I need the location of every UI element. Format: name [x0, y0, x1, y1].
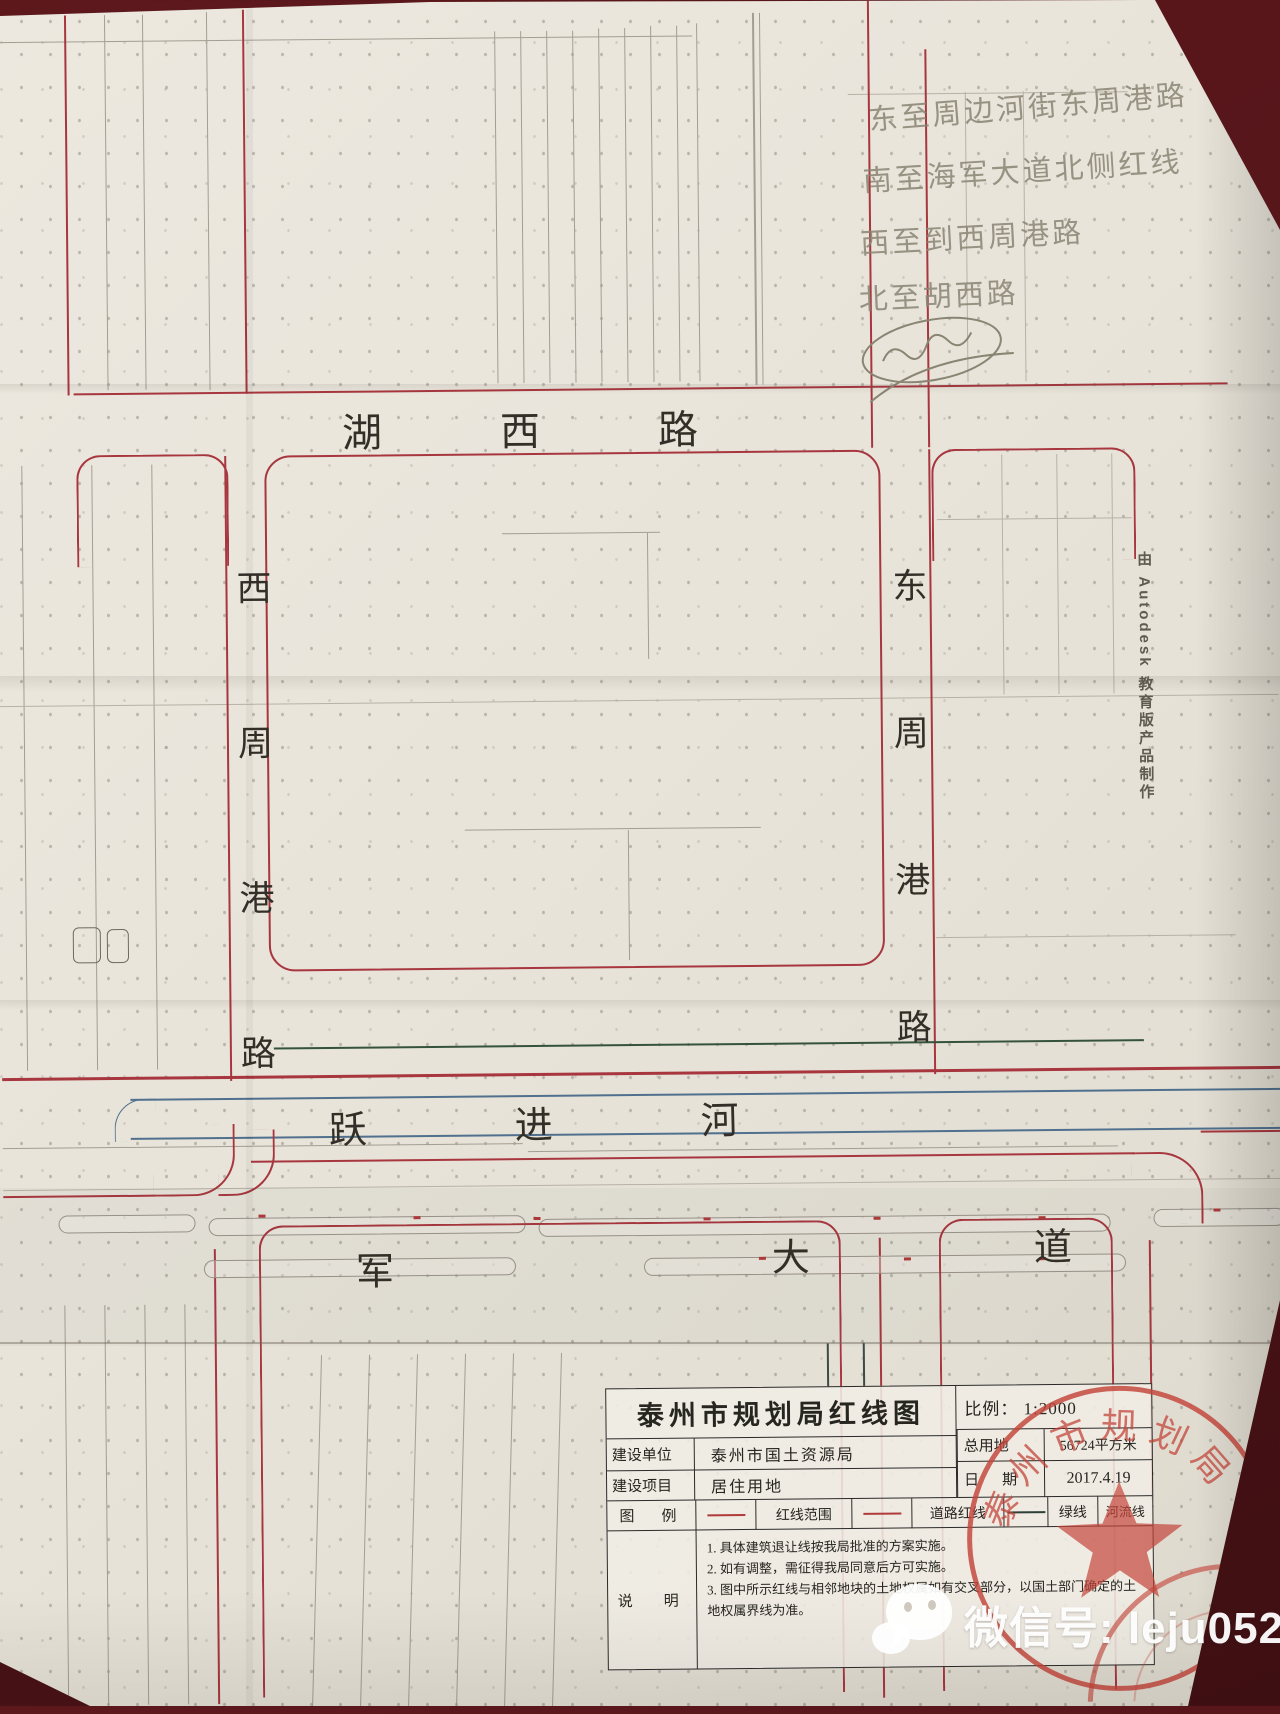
red-map-line — [1131, 1152, 1204, 1225]
decor — [866, 350, 1018, 402]
red-tick — [1213, 1208, 1220, 1211]
red-tick — [534, 1217, 541, 1220]
handwriting-line: 东至周边河街东周港路 — [867, 72, 1189, 139]
red-map-line — [1201, 1130, 1280, 1133]
parcel-line — [598, 28, 603, 382]
parcel-line — [494, 31, 499, 383]
red-map-line — [3, 1195, 155, 1198]
red-tick — [874, 1217, 881, 1220]
wechat-watermark: 微信号: leju0523 — [872, 1578, 1280, 1688]
parcel-line — [206, 12, 211, 390]
decor — [863, 1512, 901, 1514]
legend-swatch-roadred — [851, 1498, 911, 1529]
unit-label: 建设单位 — [607, 1439, 695, 1472]
map-paper: 湖西路 西周港路 东周港路 跃进河 军 大 道 东至周边河街东周港路 南至海军大… — [0, 0, 1280, 1706]
vehicle-outline — [73, 927, 101, 963]
road-label-east: 东周港路 — [881, 567, 938, 1155]
parcel-line — [752, 13, 758, 385]
parcel-line — [572, 31, 577, 383]
project-value: 居住用地 — [695, 1468, 957, 1501]
parcel-line — [696, 23, 701, 381]
parcel-line — [104, 15, 109, 390]
red-map-line — [242, 10, 248, 394]
green-line — [274, 1039, 1144, 1049]
red-map-line — [2, 1066, 1280, 1081]
decor — [707, 1514, 745, 1516]
parcel-line — [759, 13, 764, 385]
red-tick — [414, 1216, 421, 1219]
road-label-north: 湖西路 — [342, 396, 817, 459]
map-photo: { "map": { "road_north": "湖西路", "road_we… — [0, 0, 1280, 1706]
wechat-icon-eye — [928, 1600, 936, 1610]
parcel-line — [144, 1305, 149, 1705]
red-tick — [258, 1215, 265, 1218]
wechat-icon — [886, 1584, 952, 1640]
notes-label: 说 明 — [608, 1530, 697, 1669]
parcel-line — [104, 1305, 109, 1705]
parcel-line — [863, 1343, 865, 1387]
legend-label: 图 例 — [607, 1500, 695, 1531]
handwriting-line: 西至到西周港路 — [859, 209, 1085, 263]
road-label-south-char: 军 — [356, 1240, 395, 1295]
road-label-south-char: 道 — [1034, 1216, 1073, 1271]
road-label-south-char: 大 — [772, 1226, 811, 1281]
vehicle-outline — [107, 929, 129, 963]
autodesk-watermark: 由 Autodesk 教育版产品制作 — [1133, 551, 1156, 802]
road-label-west: 西周港路 — [225, 569, 282, 1189]
parcel-line — [520, 31, 525, 383]
red-map-line — [64, 15, 70, 395]
parcel-line — [624, 28, 629, 382]
red-map-line — [114, 1099, 155, 1142]
parcel-line — [650, 26, 655, 382]
parcel-line — [546, 31, 551, 383]
red-tick — [704, 1217, 711, 1220]
red-tick — [904, 1257, 911, 1260]
plot-boundary-redline — [264, 450, 885, 972]
decor — [858, 308, 1007, 393]
red-map-line — [76, 454, 229, 567]
parcel-line — [184, 1304, 189, 1704]
red-map-line — [214, 1249, 220, 1704]
handwriting-line: 南至海军大道北侧红线 — [861, 138, 1183, 200]
legend-swatch-redline — [695, 1500, 755, 1531]
map-gridlines — [0, 0, 1272, 6]
legend-item-red-range: 红线范围 — [755, 1499, 851, 1530]
map-content: 湖西路 西周港路 东周港路 跃进河 军 大 道 东至周边河街东周港路 南至海军大… — [0, 0, 1280, 1712]
project-label: 建设项目 — [607, 1471, 695, 1502]
parcel-line — [64, 1306, 69, 1706]
unit-value: 泰州市国土资源局 — [695, 1436, 957, 1471]
road-median-island — [58, 1214, 195, 1233]
parcel-line — [936, 934, 1236, 938]
parcel-line — [676, 26, 681, 382]
red-map-line — [251, 1152, 1135, 1162]
parcel-line — [21, 466, 28, 1071]
wechat-icon-eye — [904, 1602, 912, 1612]
parcel-line — [142, 15, 147, 390]
title-block-title: 泰州市规划局红线图 — [606, 1386, 956, 1439]
red-map-line — [931, 447, 1136, 561]
wechat-id-text: 微信号: leju0523 — [964, 1592, 1280, 1656]
